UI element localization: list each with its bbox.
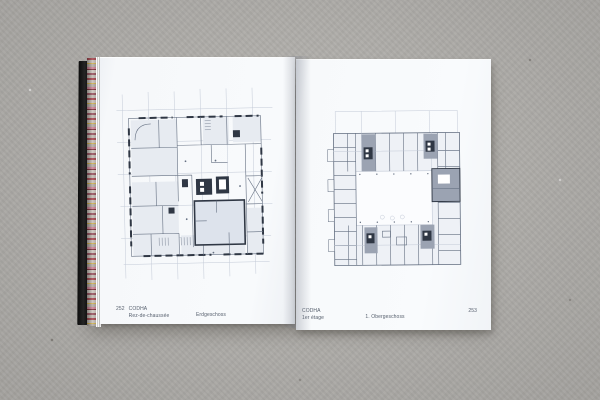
left-caption-german: Erdgeschoss <box>176 312 246 319</box>
right-project-name: CODHA <box>302 308 324 315</box>
right-page-caption: CODHA 1er étage <box>302 308 324 322</box>
left-page-number: 252 <box>116 306 125 320</box>
right-page-number: 253 <box>468 308 477 315</box>
left-project-name: CODHA <box>129 306 170 313</box>
photo-scene: 252 CODHA Rez-de-chaussée Erdgeschoss <box>0 0 600 400</box>
right-caption-french: 1er étage <box>302 315 324 322</box>
right-page: CODHA 1er étage 1. Obergeschoss 253 <box>296 59 491 330</box>
right-caption-german: 1. Obergeschoss <box>345 314 425 321</box>
left-page-caption: 252 CODHA Rez-de-chaussée <box>116 306 169 320</box>
left-page: 252 CODHA Rez-de-chaussée Erdgeschoss <box>100 57 295 324</box>
left-caption-french: Rez-de-chaussée <box>129 313 170 320</box>
open-book: 252 CODHA Rez-de-chaussée Erdgeschoss <box>78 56 492 330</box>
ground-floor-plan <box>116 87 276 282</box>
first-floor-plan <box>326 107 468 272</box>
